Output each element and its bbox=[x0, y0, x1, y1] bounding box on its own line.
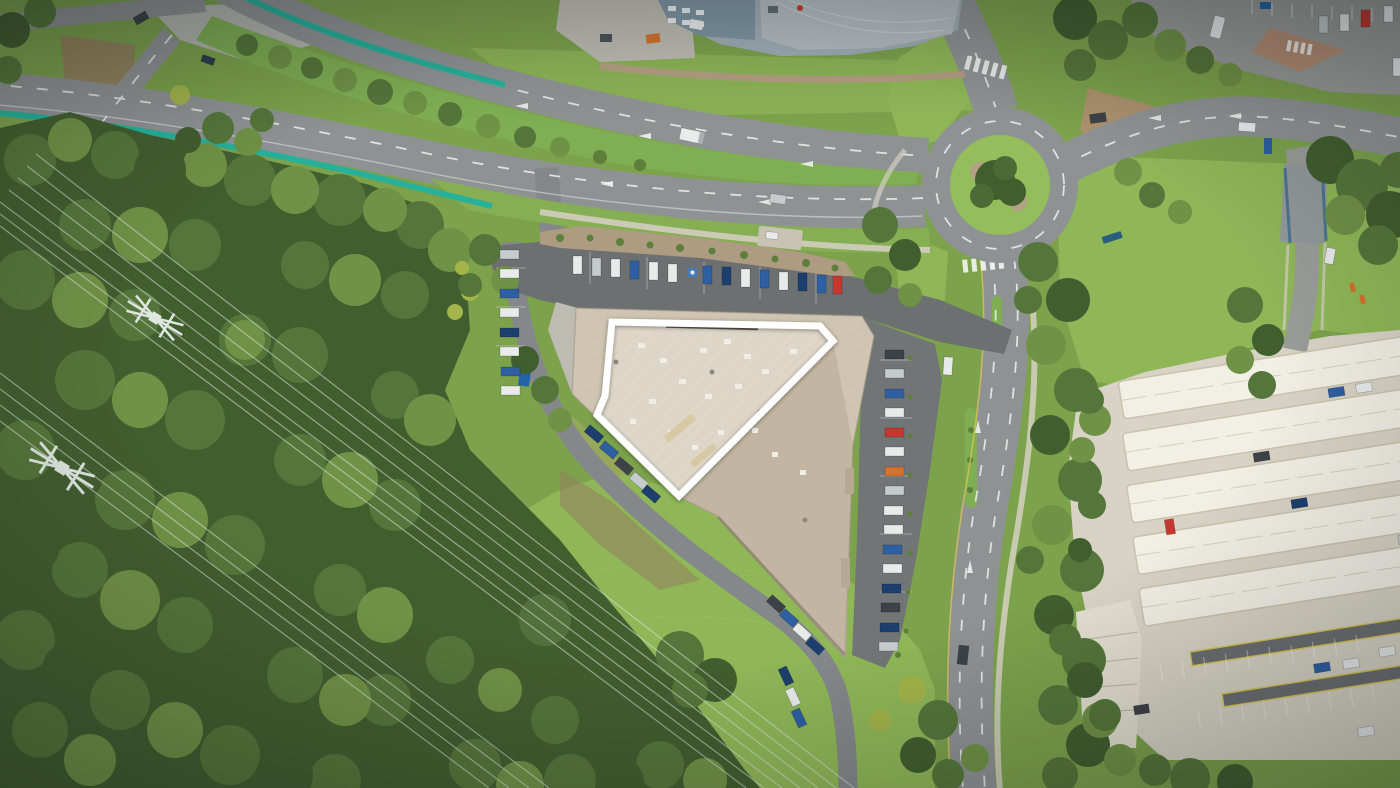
accessible-parking-symbol bbox=[688, 268, 697, 277]
road-sign-blue bbox=[1264, 138, 1272, 154]
aerial-photo: Top-down aerial drone photo of a commerc… bbox=[0, 0, 1400, 788]
aerial-scene: Top-down aerial drone photo of a commerc… bbox=[0, 0, 1400, 788]
roundabout bbox=[922, 107, 1078, 263]
